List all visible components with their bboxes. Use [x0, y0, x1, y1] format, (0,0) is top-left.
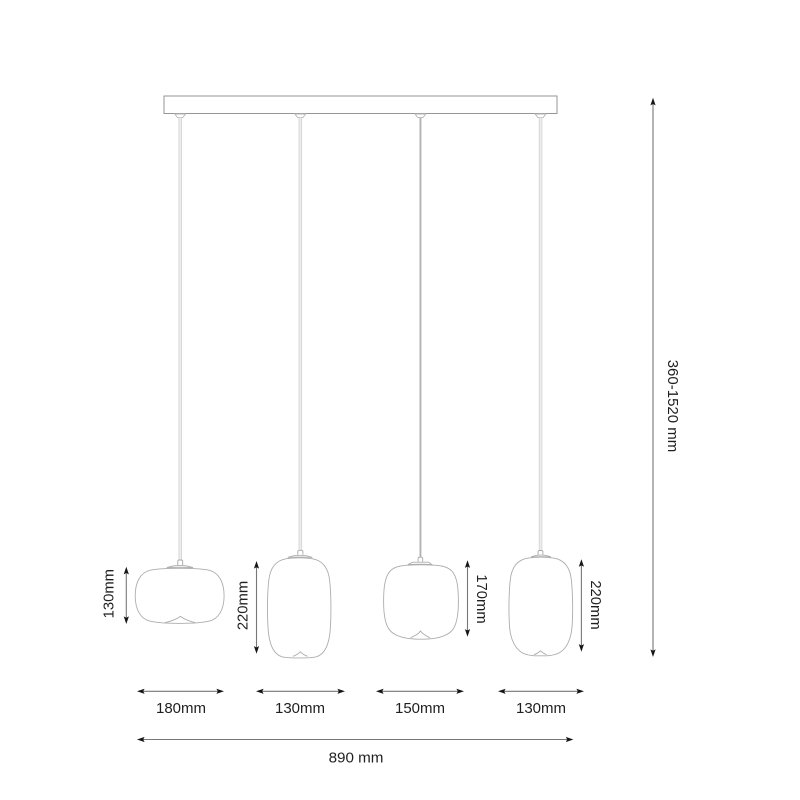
svg-text:220mm: 220mm [236, 581, 252, 630]
svg-text:220mm: 220mm [587, 580, 603, 629]
svg-text:130mm: 130mm [102, 569, 118, 618]
svg-text:170mm: 170mm [473, 574, 489, 623]
svg-text:180mm: 180mm [156, 700, 206, 717]
svg-text:130mm: 130mm [275, 700, 325, 717]
svg-text:890 mm: 890 mm [329, 749, 384, 766]
svg-text:130mm: 130mm [516, 700, 566, 717]
svg-text:360-1520 mm: 360-1520 mm [664, 360, 681, 453]
svg-text:150mm: 150mm [395, 700, 445, 717]
